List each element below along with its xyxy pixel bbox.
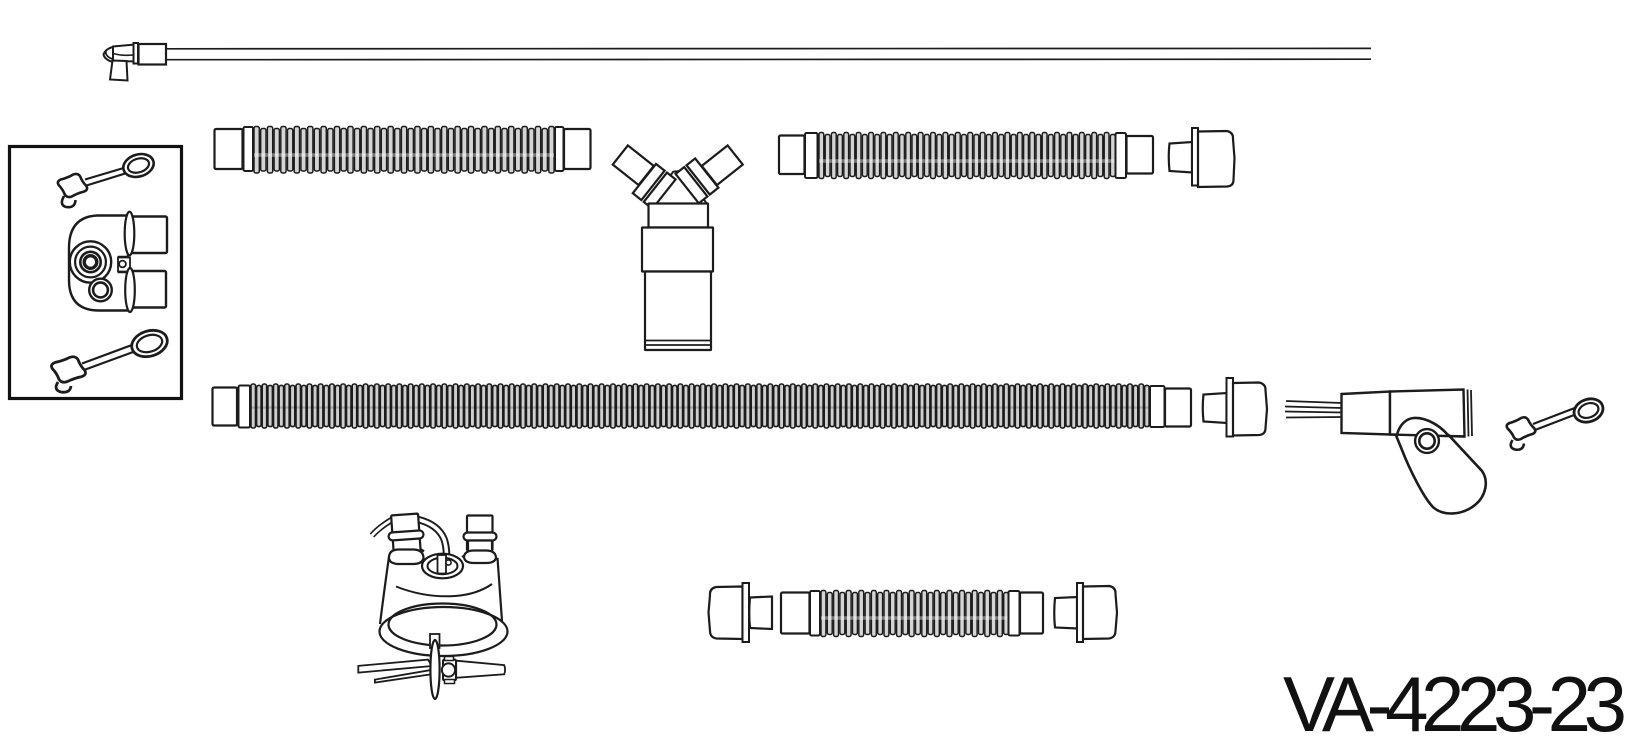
svg-text:VA-4223-23: VA-4223-23 (1283, 660, 1627, 744)
